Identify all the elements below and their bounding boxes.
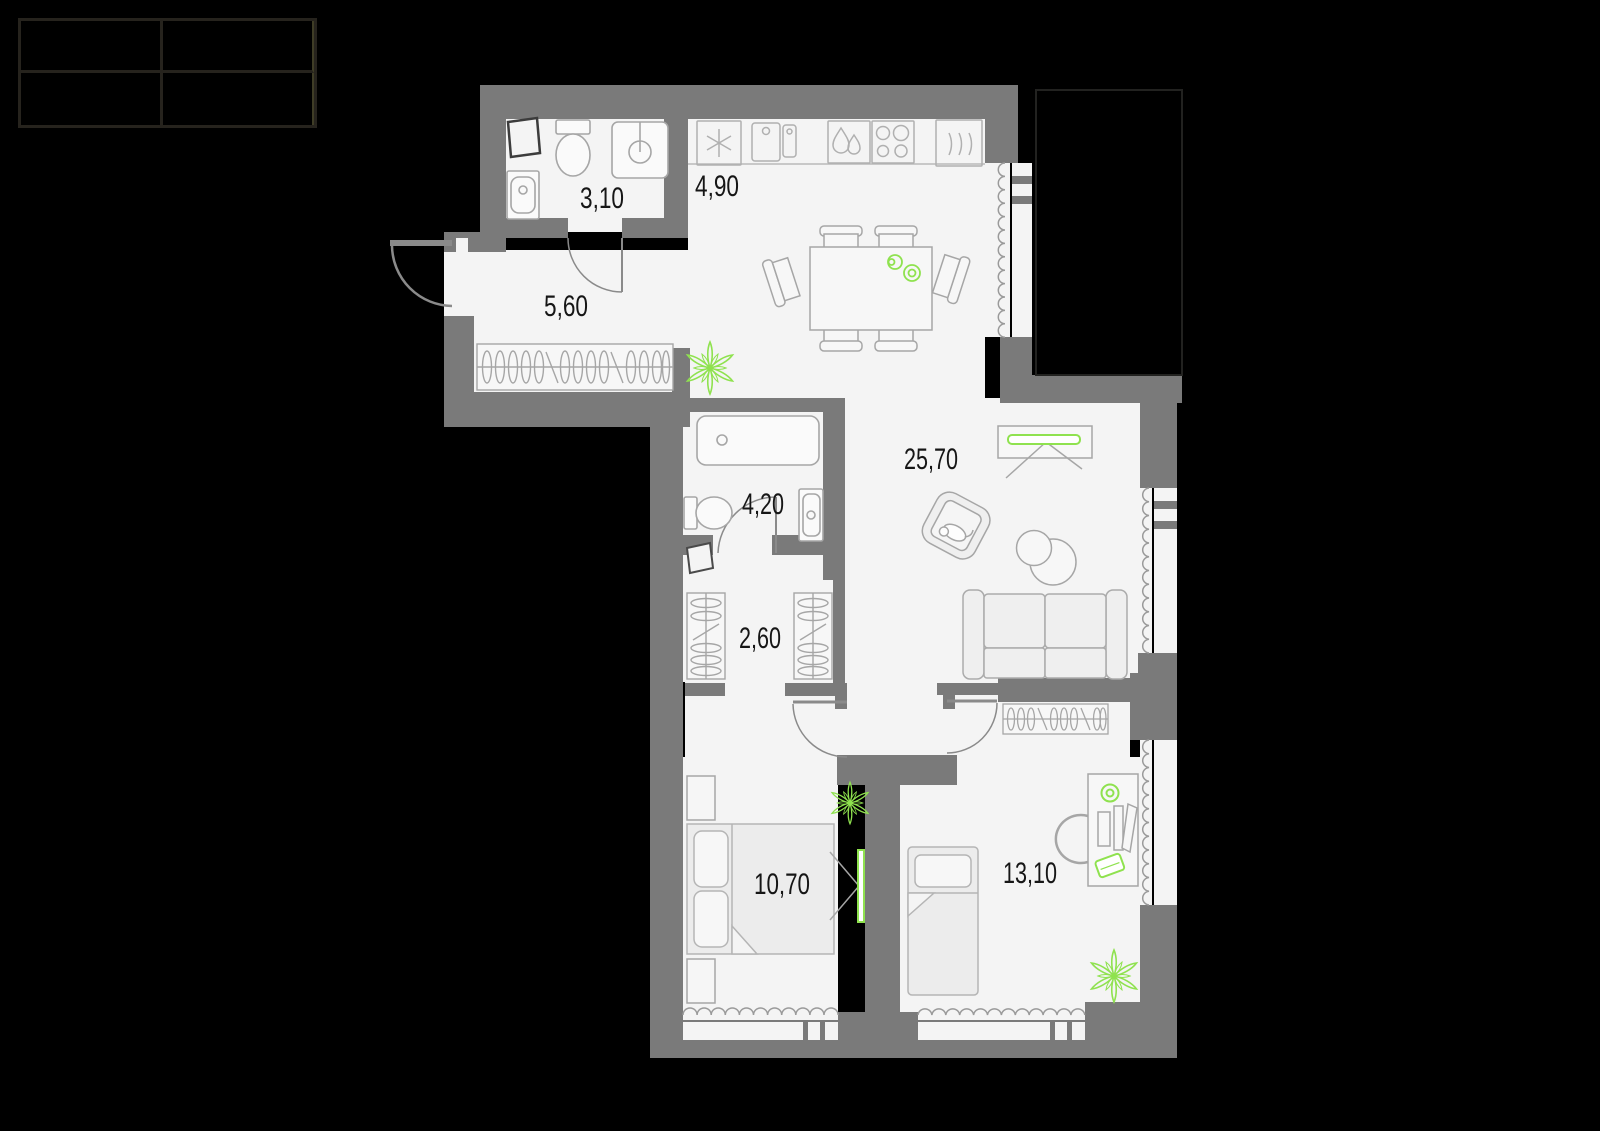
wardrobe-left xyxy=(687,593,725,679)
wall xyxy=(1140,403,1177,488)
wall xyxy=(480,85,1018,119)
area-label-living: 25,70 xyxy=(904,443,958,476)
bedroom2-wardrobe xyxy=(1003,704,1108,734)
wall xyxy=(685,683,725,696)
wall xyxy=(838,1012,918,1040)
sofa xyxy=(963,590,1127,679)
window-bay-floor xyxy=(1140,740,1152,905)
area-label-bathroom: 4,20 xyxy=(742,488,784,521)
entry-opening-floor xyxy=(444,250,476,318)
shower xyxy=(612,122,668,178)
vent-shaft xyxy=(687,543,713,573)
wall xyxy=(1140,905,1177,1040)
vent-shaft xyxy=(508,118,540,157)
area-label-bedroom: 10,70 xyxy=(754,868,810,901)
tv-screen xyxy=(858,850,864,922)
wall xyxy=(1000,337,1032,378)
window-bay-floor xyxy=(1140,488,1152,653)
wall xyxy=(622,218,664,238)
wall xyxy=(833,580,845,683)
pillow xyxy=(915,855,971,887)
window-bay-floor xyxy=(985,163,1010,337)
area-label-corridor: 2,60 xyxy=(739,622,781,655)
keyboard xyxy=(1114,806,1123,850)
wall xyxy=(998,678,1140,702)
bathtub xyxy=(697,416,819,465)
area-label-kitchen: 4,90 xyxy=(695,170,739,203)
nightstand xyxy=(687,776,715,820)
dining-table xyxy=(810,247,932,330)
sink xyxy=(799,489,823,541)
nightstand xyxy=(687,959,715,1003)
wall xyxy=(1085,1002,1140,1040)
wall xyxy=(823,398,845,580)
toilet xyxy=(556,120,590,176)
wall xyxy=(444,232,506,252)
wall xyxy=(648,398,830,412)
wall xyxy=(480,85,506,232)
single-bed xyxy=(908,847,978,995)
chair xyxy=(820,341,862,351)
area-label-bathroom-small: 3,10 xyxy=(580,182,624,215)
balcony-outline xyxy=(1036,90,1182,375)
wall xyxy=(785,683,847,696)
chair-seat xyxy=(824,234,858,248)
wall-divider xyxy=(865,785,900,1012)
monitor xyxy=(1098,812,1110,846)
chair xyxy=(875,341,917,351)
hallway-wardrobe xyxy=(477,344,673,390)
pillow xyxy=(694,891,728,947)
area-label-hallway: 5,60 xyxy=(544,290,588,323)
wall xyxy=(937,683,998,695)
sink xyxy=(507,171,539,219)
wardrobe-right xyxy=(794,593,832,679)
chair-seat xyxy=(879,234,913,248)
wall xyxy=(837,755,957,785)
wall xyxy=(504,218,568,238)
wall-outer-bottom xyxy=(650,1040,1177,1058)
tv-screen xyxy=(1008,435,1080,444)
area-label-bedroom2: 13,10 xyxy=(1003,857,1057,890)
toilet xyxy=(684,497,732,529)
pillow xyxy=(694,831,728,887)
wall xyxy=(1000,375,1182,403)
floor-plan: 3,10 4,90 5,60 25,70 4,20 2,60 10,70 13,… xyxy=(0,0,1600,1131)
floor-plan-page: 3,10 4,90 5,60 25,70 4,20 2,60 10,70 13,… xyxy=(0,0,1600,1131)
wall-outer-left xyxy=(650,392,683,1058)
wall xyxy=(985,85,1018,163)
